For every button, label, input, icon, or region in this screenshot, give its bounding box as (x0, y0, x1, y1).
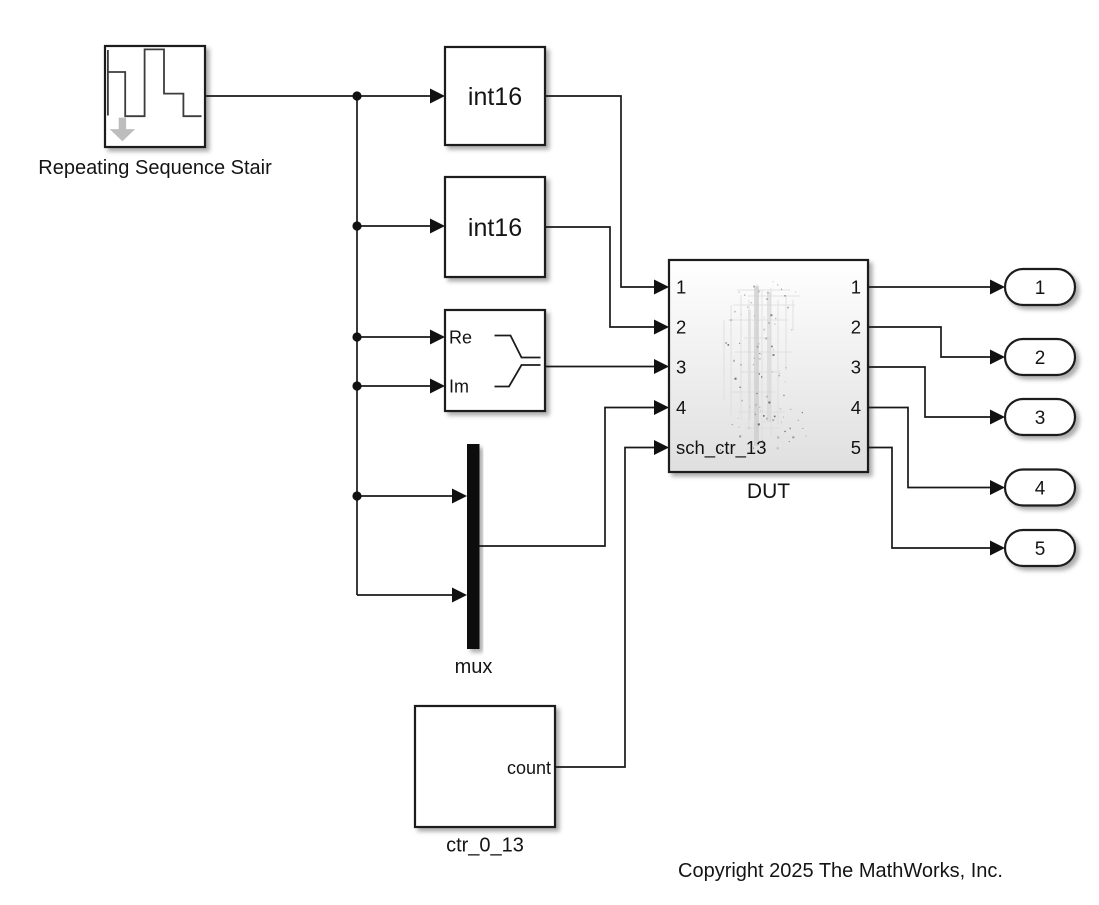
svg-text:5: 5 (1035, 539, 1046, 560)
svg-text:sch_ctr_13: sch_ctr_13 (676, 437, 767, 459)
svg-text:3: 3 (1035, 408, 1046, 429)
svg-text:4: 4 (676, 397, 686, 418)
svg-text:mux: mux (455, 656, 493, 678)
svg-text:5: 5 (851, 437, 861, 458)
svg-text:Im: Im (449, 377, 469, 397)
svg-text:Copyright 2025 The MathWorks,: Copyright 2025 The MathWorks, Inc. (678, 860, 1003, 882)
svg-text:Repeating Sequence Stair: Repeating Sequence Stair (38, 157, 272, 179)
svg-text:2: 2 (1035, 348, 1046, 369)
svg-text:1: 1 (1035, 278, 1046, 299)
svg-text:4: 4 (1035, 479, 1046, 500)
svg-text:ctr_0_13: ctr_0_13 (446, 835, 524, 857)
svg-text:count: count (507, 758, 551, 778)
svg-text:3: 3 (676, 357, 686, 378)
svg-text:1: 1 (851, 277, 861, 298)
svg-text:1: 1 (676, 277, 686, 298)
svg-text:DUT: DUT (747, 480, 790, 503)
svg-text:int16: int16 (468, 214, 522, 242)
svg-text:2: 2 (676, 317, 686, 338)
svg-text:int16: int16 (468, 83, 522, 111)
svg-text:4: 4 (851, 397, 861, 418)
svg-text:3: 3 (851, 357, 861, 378)
svg-text:2: 2 (851, 317, 861, 338)
svg-text:Re: Re (449, 328, 472, 348)
